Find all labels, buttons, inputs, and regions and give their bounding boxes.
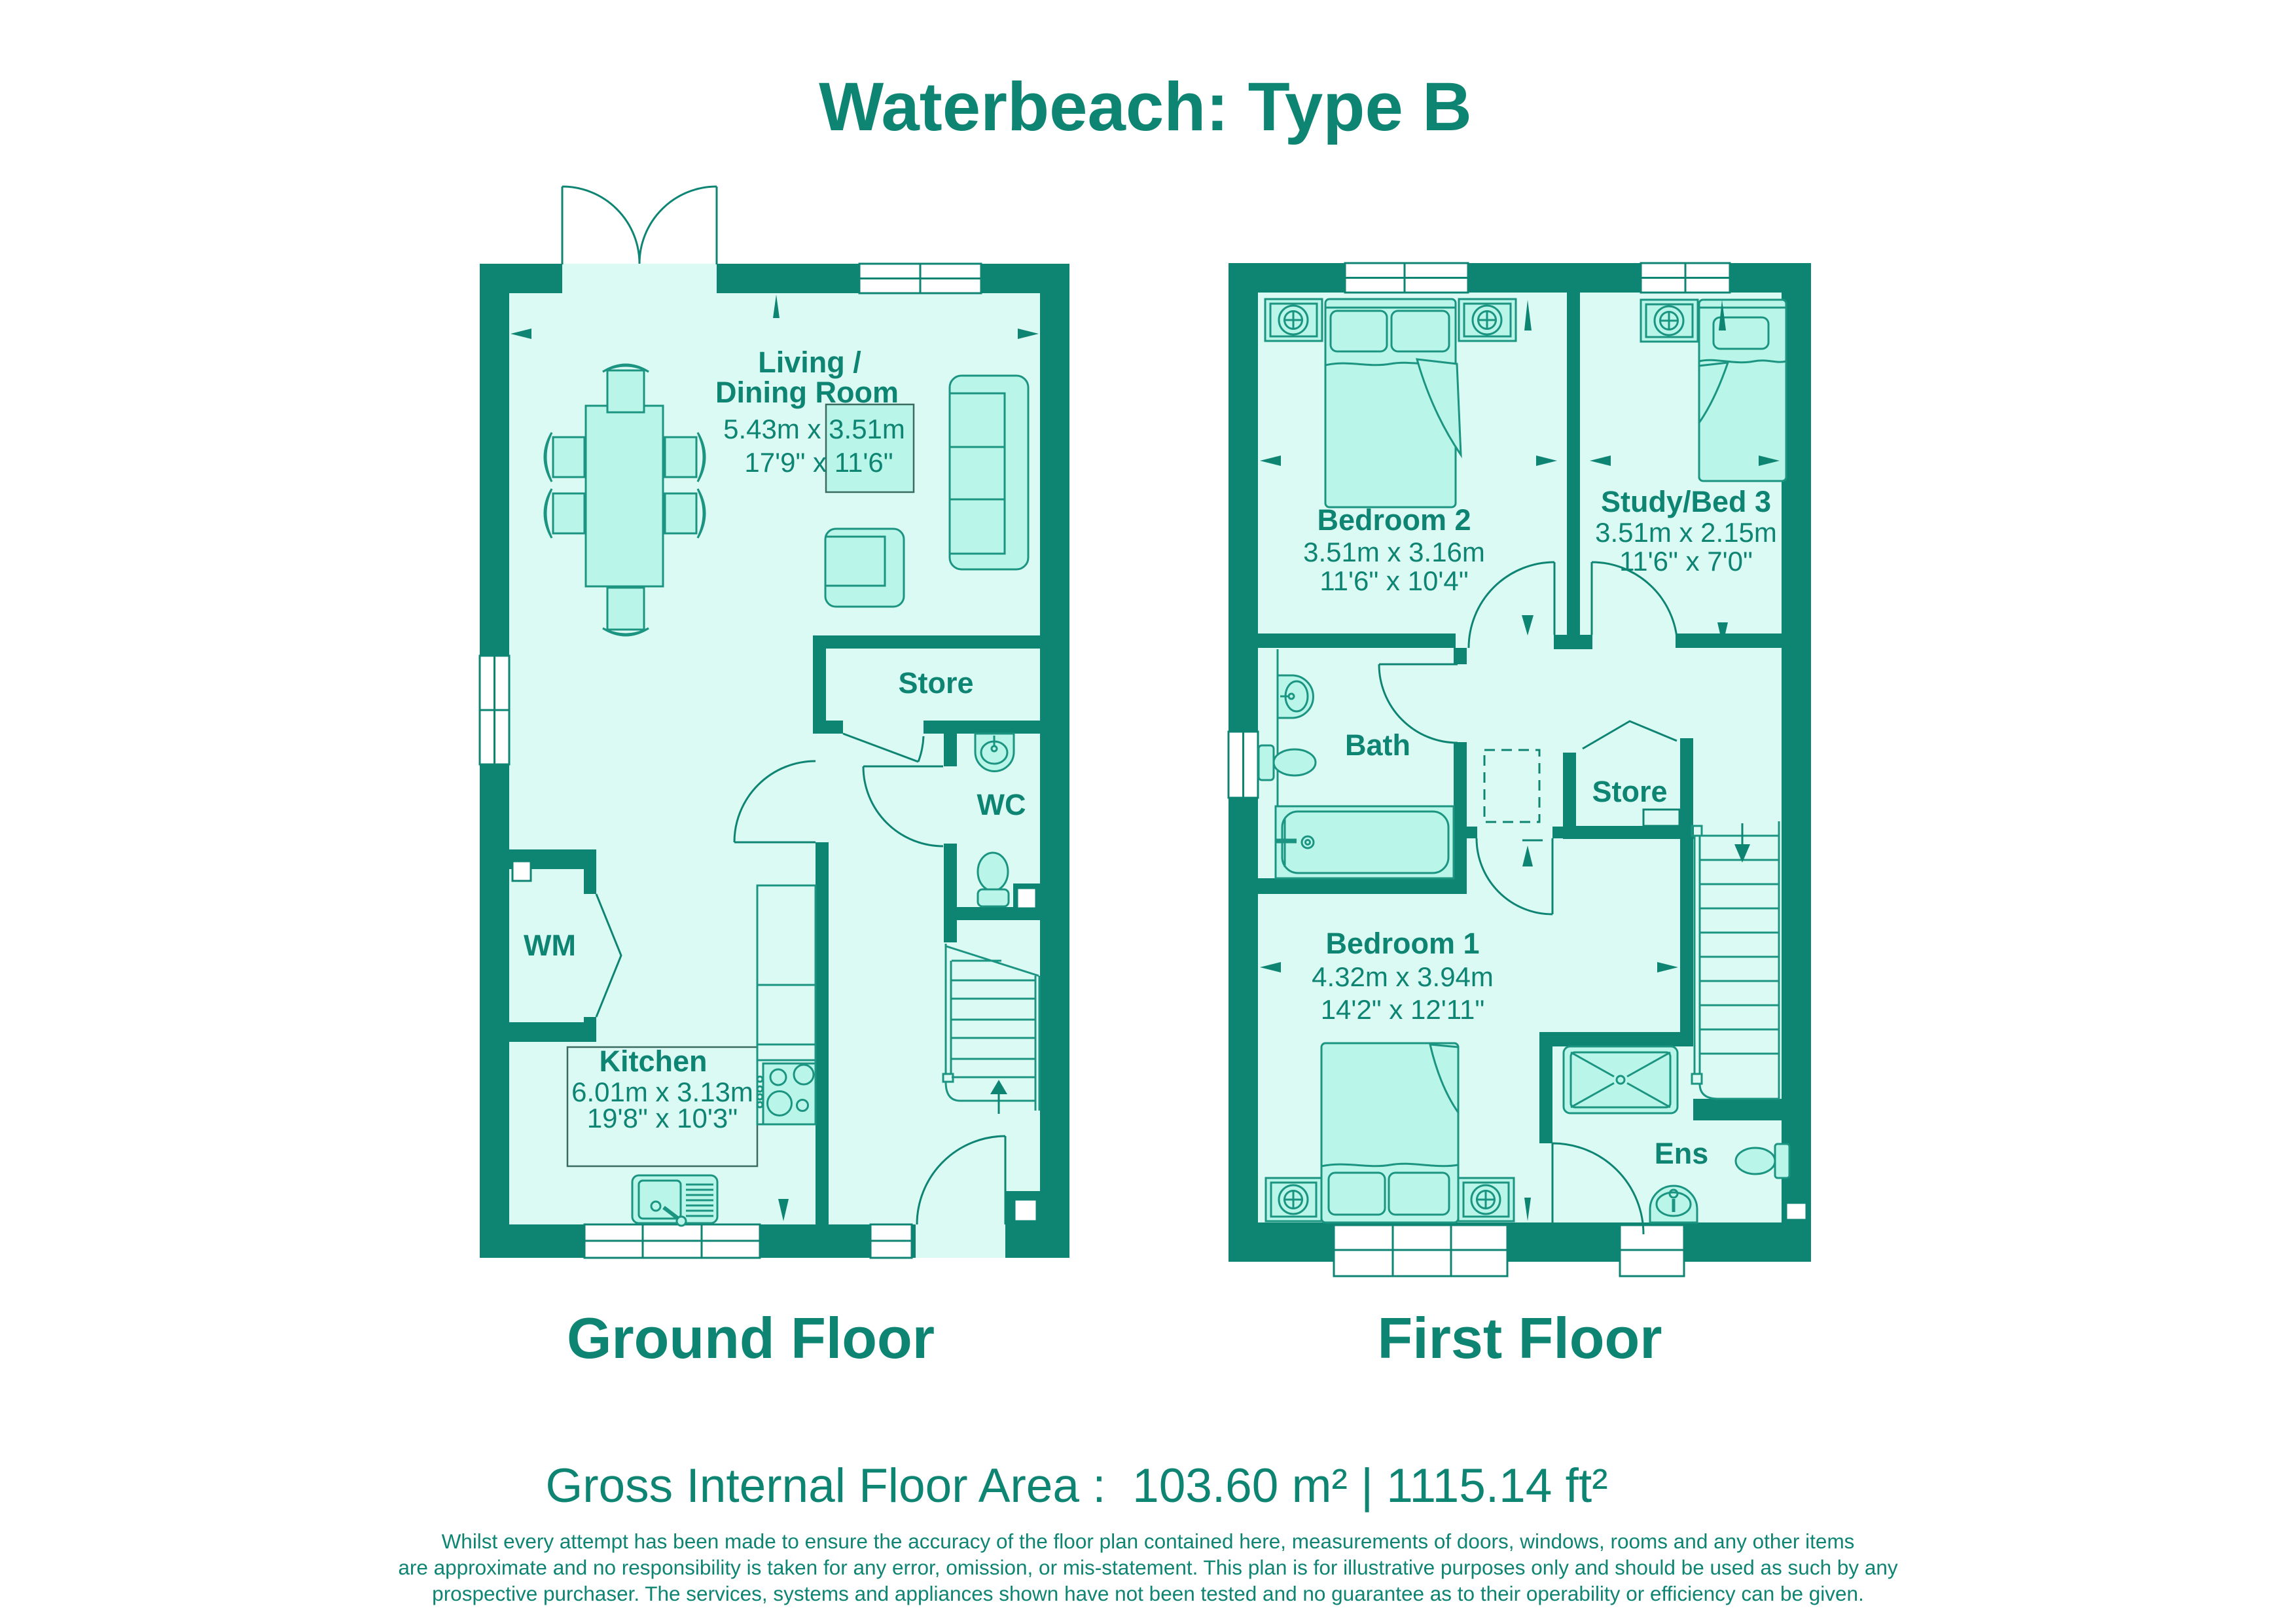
svg-text:Study/Bed 3: Study/Bed 3 bbox=[1601, 485, 1771, 518]
svg-text:3.51m x 2.15m: 3.51m x 2.15m bbox=[1595, 517, 1777, 548]
svg-text:4.32m x 3.94m: 4.32m x 3.94m bbox=[1312, 961, 1494, 992]
svg-text:First Floor: First Floor bbox=[1377, 1306, 1662, 1370]
svg-text:11'6" x 7'0": 11'6" x 7'0" bbox=[1619, 546, 1753, 577]
svg-text:Ground Floor: Ground Floor bbox=[567, 1306, 935, 1370]
svg-text:Store: Store bbox=[1592, 775, 1667, 808]
svg-text:prospective purchaser. The ser: prospective purchaser. The services, sys… bbox=[432, 1582, 1864, 1605]
svg-text:Living /: Living / bbox=[758, 346, 861, 379]
svg-text:WM: WM bbox=[524, 929, 576, 962]
svg-text:Whilst every attempt has been: Whilst every attempt has been made to en… bbox=[442, 1529, 1855, 1553]
svg-text:are approximate and no respons: are approximate and no responsibility is… bbox=[398, 1556, 1898, 1579]
svg-text:Ens: Ens bbox=[1655, 1137, 1709, 1170]
svg-text:Gross Internal Floor Area : 1: Gross Internal Floor Area : 103.60 m² | … bbox=[545, 1459, 1607, 1512]
svg-text:11'6" x 10'4": 11'6" x 10'4" bbox=[1319, 565, 1468, 596]
svg-text:Waterbeach: Type B: Waterbeach: Type B bbox=[819, 69, 1472, 145]
svg-text:Kitchen: Kitchen bbox=[599, 1044, 707, 1078]
svg-text:3.51m x 3.16m: 3.51m x 3.16m bbox=[1303, 537, 1485, 567]
svg-text:17'9" x 11'6": 17'9" x 11'6" bbox=[744, 447, 893, 478]
svg-text:19'8" x 10'3": 19'8" x 10'3" bbox=[587, 1103, 738, 1133]
svg-text:Bedroom 1: Bedroom 1 bbox=[1325, 927, 1479, 960]
svg-text:WC: WC bbox=[977, 788, 1026, 821]
svg-text:Dining Room: Dining Room bbox=[715, 376, 899, 409]
svg-text:5.43m x 3.51m: 5.43m x 3.51m bbox=[723, 414, 905, 444]
svg-text:Store: Store bbox=[898, 666, 973, 700]
svg-text:Bath: Bath bbox=[1345, 728, 1410, 762]
svg-text:14'2" x 12'11": 14'2" x 12'11" bbox=[1321, 994, 1485, 1025]
svg-text:Bedroom 2: Bedroom 2 bbox=[1317, 503, 1471, 537]
